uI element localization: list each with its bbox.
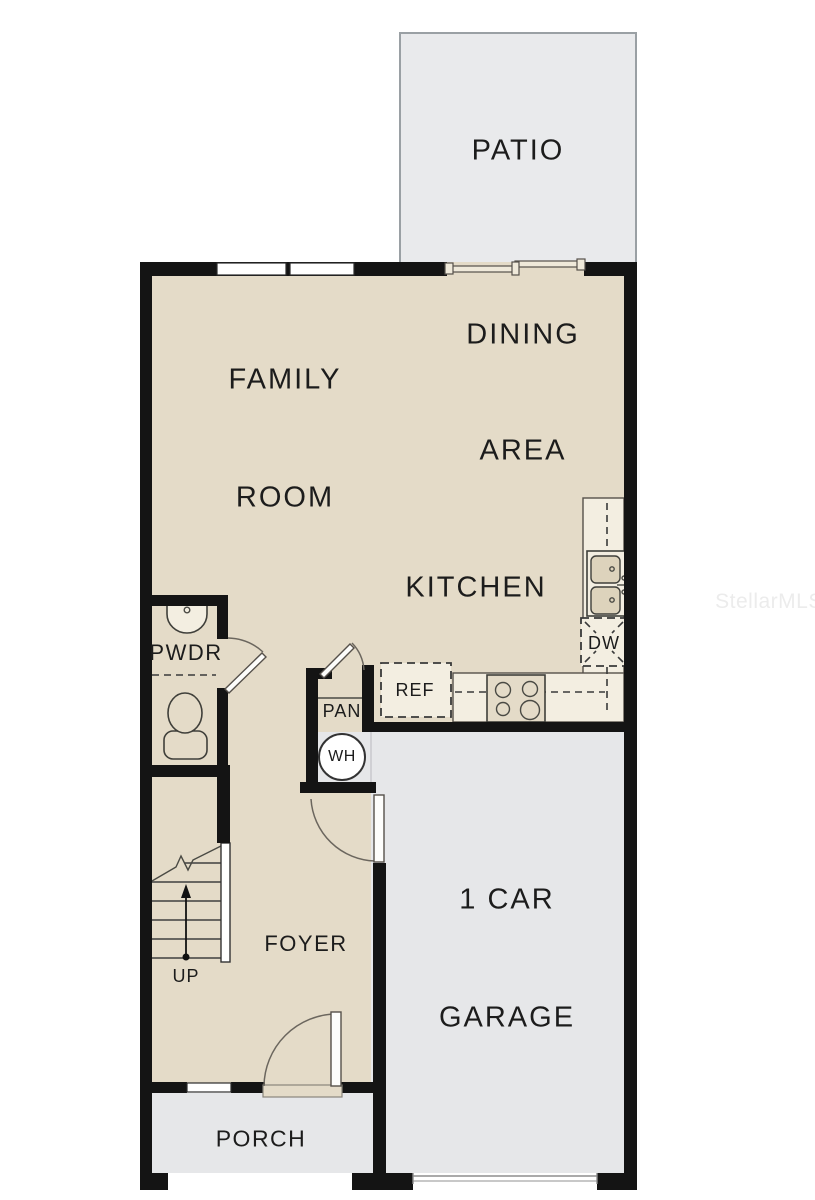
floor-plan-canvas: PATIO FAMILY ROOM DINING AREA KITCHEN PW… bbox=[0, 0, 815, 1200]
pantry-label: PAN bbox=[323, 699, 362, 723]
water-heater-label: WH bbox=[328, 746, 356, 768]
powder-room-label: PWDR bbox=[149, 638, 222, 668]
family-room-label: FAMILY ROOM bbox=[229, 281, 342, 597]
dishwasher-label: DW bbox=[588, 631, 620, 655]
family-room-window bbox=[290, 263, 354, 275]
garage-label: 1 CAR GARAGE bbox=[439, 801, 575, 1117]
porch-label: PORCH bbox=[216, 1123, 307, 1154]
garage-door bbox=[413, 1173, 597, 1190]
stair-stringer bbox=[221, 843, 230, 962]
foyer-label: FOYER bbox=[264, 929, 347, 959]
family-room-window bbox=[217, 263, 286, 275]
stellar-mls-watermark: StellarMLS bbox=[715, 590, 815, 614]
kitchen-sink bbox=[587, 551, 628, 616]
stove-cooktop bbox=[487, 675, 545, 722]
patio-label: PATIO bbox=[472, 131, 565, 170]
foyer-window bbox=[187, 1083, 231, 1092]
refrigerator-label: REF bbox=[396, 678, 435, 702]
front-door-threshold bbox=[263, 1085, 342, 1097]
kitchen-label: KITCHEN bbox=[405, 568, 546, 607]
dining-area-label: DINING AREA bbox=[466, 238, 580, 549]
stairs-up-label: UP bbox=[172, 964, 199, 988]
